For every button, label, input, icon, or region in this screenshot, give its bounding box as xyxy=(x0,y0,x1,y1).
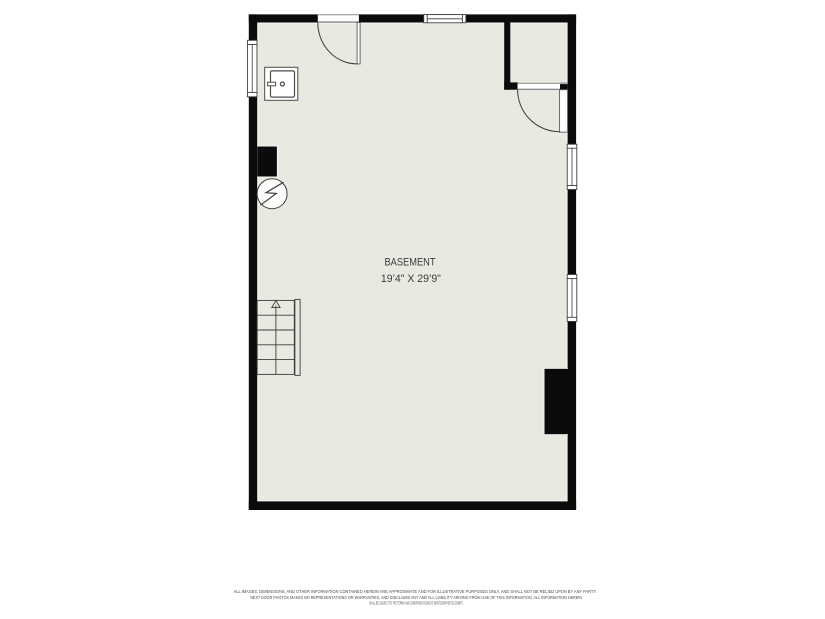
svg-text:ALL IMAGES, DIMENSIONS, AND OT: ALL IMAGES, DIMENSIONS, AND OTHER INFORM… xyxy=(234,589,597,594)
svg-text:SHALL BE SUBJECT TO THE TERMS: SHALL BE SUBJECT TO THE TERMS AND CONDIT… xyxy=(369,601,463,606)
svg-text:19’4" X 29’9": 19’4" X 29’9" xyxy=(381,273,441,285)
svg-text:BASEMENT: BASEMENT xyxy=(385,256,436,268)
svg-text:NEXT DOOR PHOTOS MAKES NO REPR: NEXT DOOR PHOTOS MAKES NO REPRESENTATION… xyxy=(250,595,582,600)
